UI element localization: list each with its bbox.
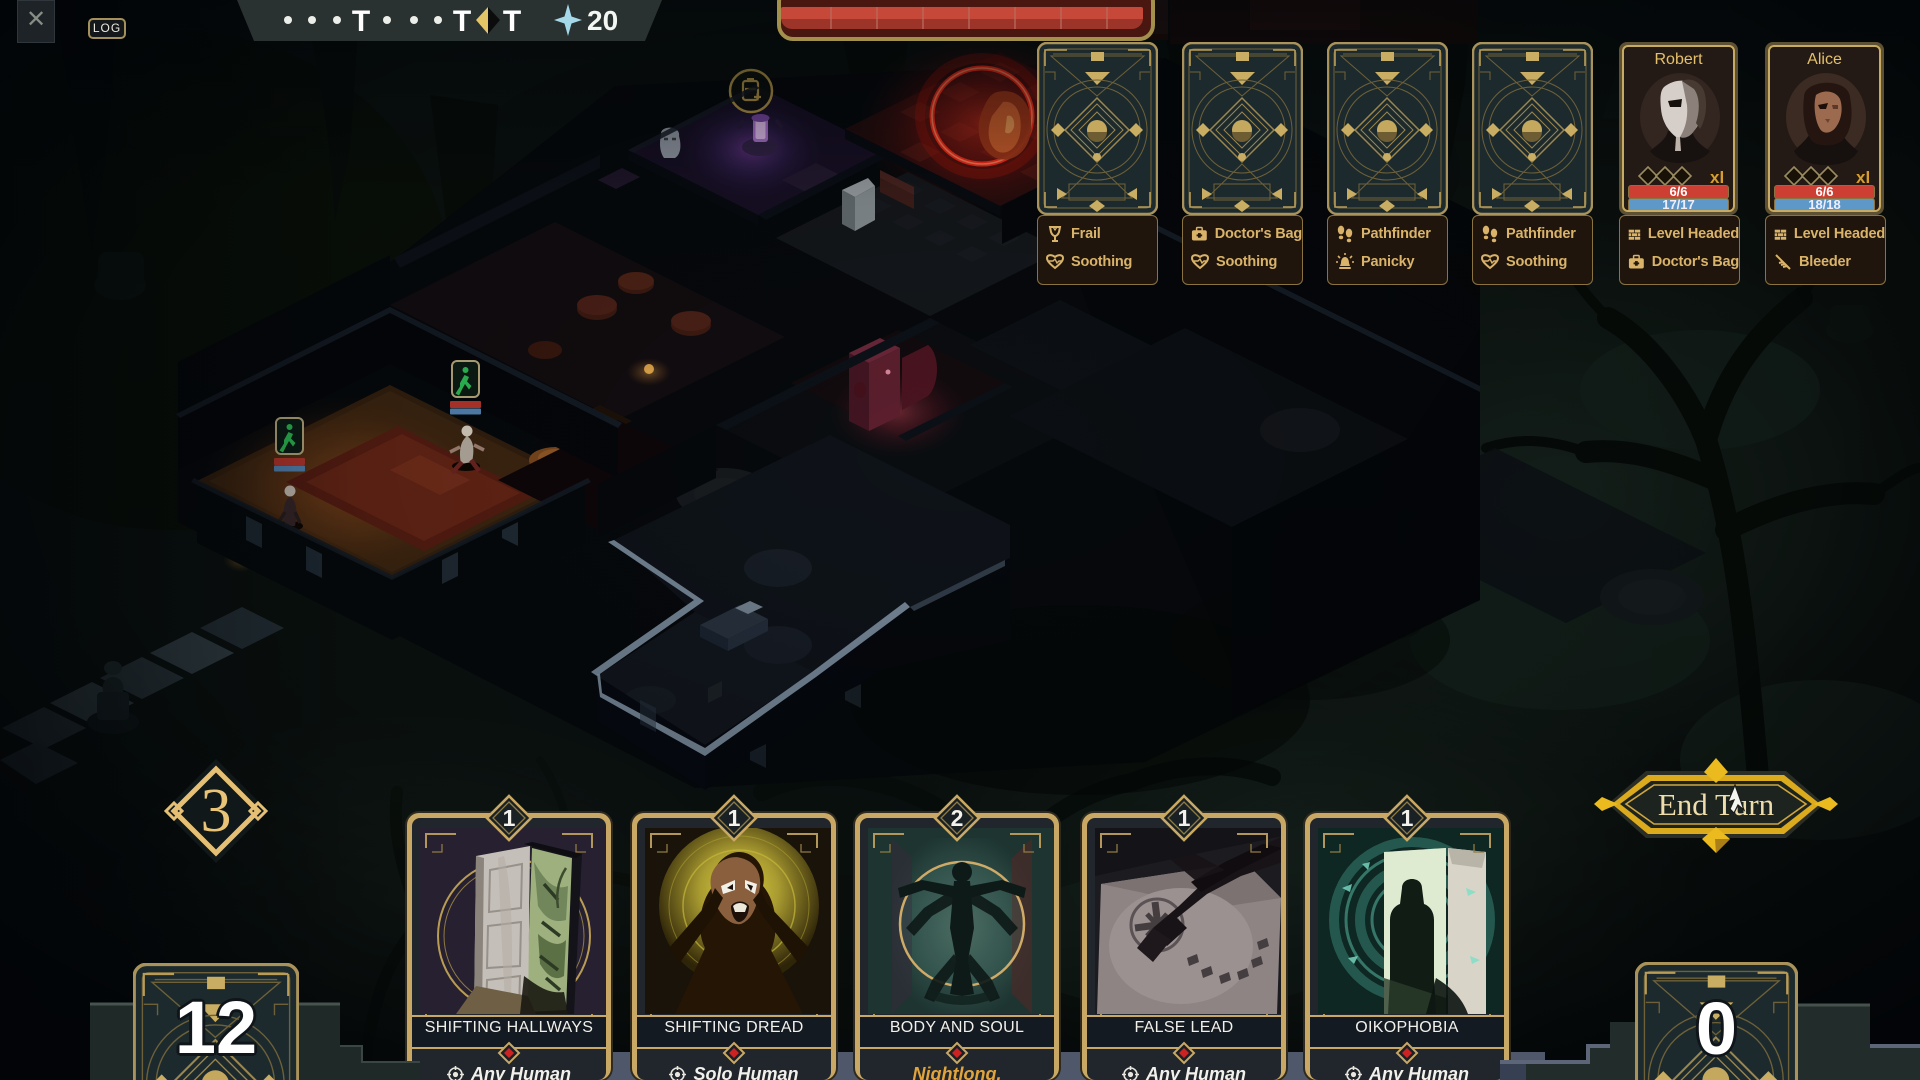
svg-text:3: 3	[201, 777, 232, 845]
svg-text:T: T	[503, 5, 521, 38]
svg-text:20: 20	[587, 5, 618, 36]
svg-text:T: T	[352, 5, 370, 38]
svg-text:2: 2	[951, 805, 964, 831]
svg-text:1: 1	[1401, 805, 1414, 831]
svg-text:End Turn: End Turn	[1658, 787, 1775, 822]
svg-text:1: 1	[1178, 805, 1191, 831]
svg-text:T: T	[453, 5, 471, 38]
svg-text:1: 1	[503, 805, 516, 831]
svg-text:1: 1	[728, 805, 741, 831]
